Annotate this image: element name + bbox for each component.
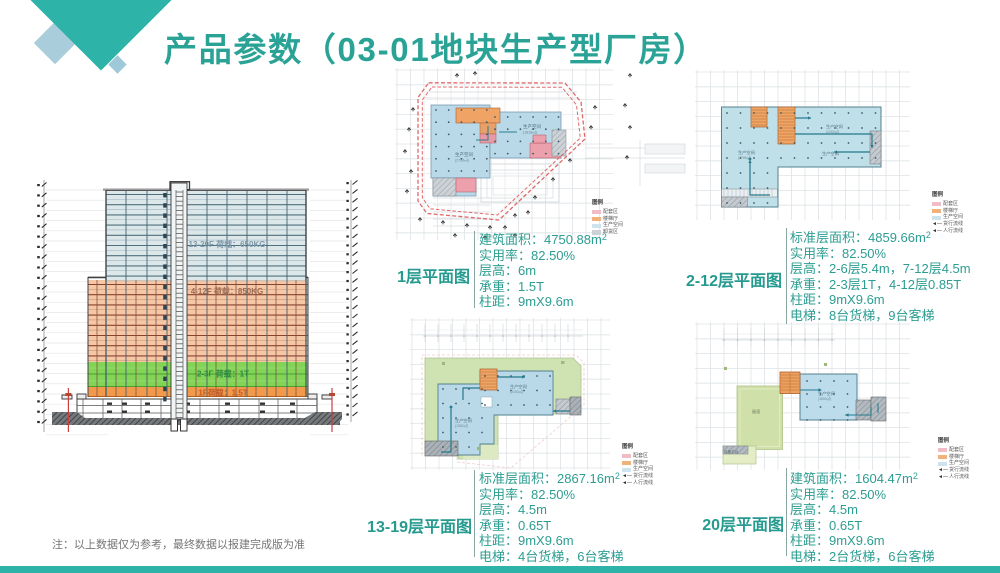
- svg-text:生产空间: 生产空间: [523, 123, 541, 130]
- svg-text:(1604㎡): (1604㎡): [818, 396, 831, 401]
- svg-text:(2153㎡): (2153㎡): [510, 389, 523, 394]
- svg-text:生产空间: 生产空间: [822, 150, 839, 157]
- svg-text:设备平台: 设备平台: [724, 449, 739, 454]
- svg-text:(1350㎡): (1350㎡): [455, 423, 468, 428]
- svg-text:生产空间: 生产空间: [826, 123, 843, 130]
- svg-text:1F荷载：1.5T: 1F荷载：1.5T: [198, 388, 247, 398]
- svg-text:生产空间: 生产空间: [455, 417, 472, 424]
- svg-text:生产空间: 生产空间: [455, 151, 473, 158]
- svg-text:(2706㎡): (2706㎡): [738, 155, 751, 160]
- svg-text:4-12F 荷载：850KG: 4-12F 荷载：850KG: [191, 286, 263, 296]
- svg-text:生产空间: 生产空间: [818, 390, 835, 397]
- svg-text:生产空间: 生产空间: [510, 383, 527, 390]
- svg-text:(2706㎡): (2706㎡): [455, 158, 469, 163]
- svg-text:(2153㎡): (2153㎡): [826, 129, 839, 134]
- svg-text:13-20F 荷载：650KG: 13-20F 荷载：650KG: [189, 239, 266, 249]
- svg-text:2-3F 荷载：1T: 2-3F 荷载：1T: [197, 369, 249, 379]
- svg-text:生产空间: 生产空间: [738, 149, 755, 156]
- svg-text:(1818㎡): (1818㎡): [523, 130, 537, 135]
